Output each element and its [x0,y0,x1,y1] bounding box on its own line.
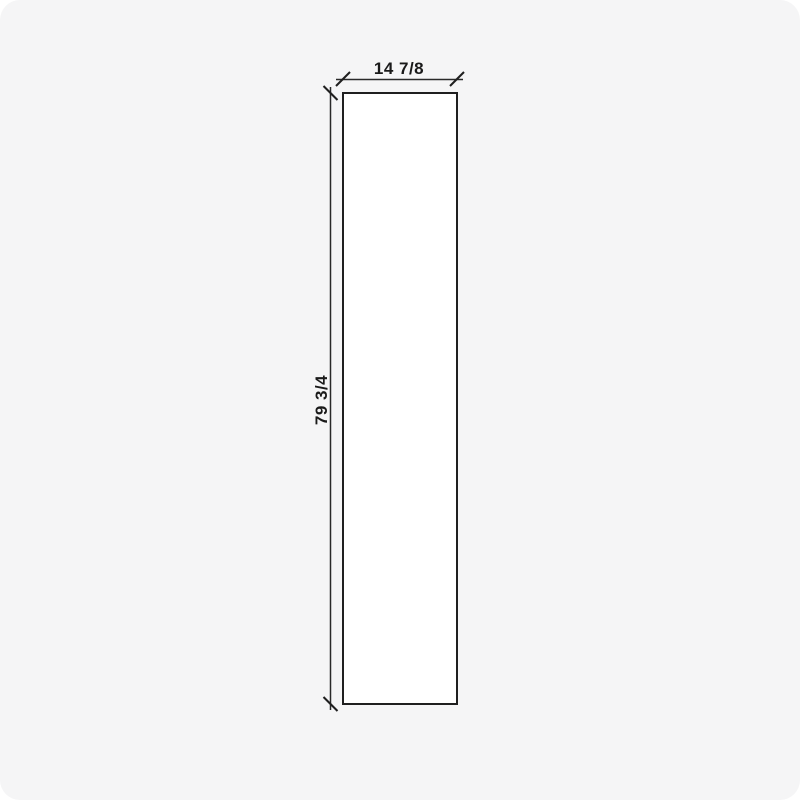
height-dimension-label: 79 3/4 [312,375,331,425]
width-dimension: 14 7/8 [336,59,464,86]
height-dimension: 79 3/4 [312,86,338,711]
panel-drawing: 14 7/8 79 3/4 [0,0,800,800]
drawing-canvas: 14 7/8 79 3/4 [0,0,800,800]
panel-outline [343,93,457,704]
width-dimension-label: 14 7/8 [374,59,424,78]
